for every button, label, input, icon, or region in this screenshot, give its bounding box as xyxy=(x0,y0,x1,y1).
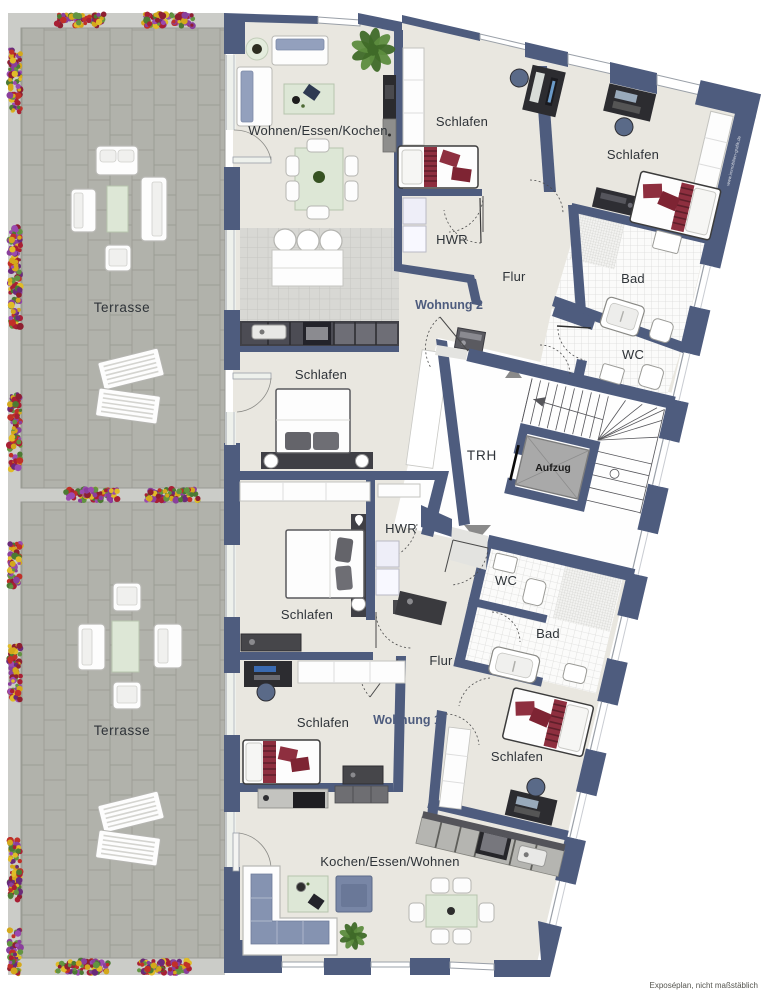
svg-text:Flur: Flur xyxy=(429,653,453,668)
svg-text:Schlafen: Schlafen xyxy=(607,147,659,162)
svg-text:Schlafen: Schlafen xyxy=(491,749,543,764)
svg-text:Flur: Flur xyxy=(502,269,526,284)
svg-text:Schlafen: Schlafen xyxy=(281,607,333,622)
svg-text:Aufzug: Aufzug xyxy=(535,462,571,474)
svg-text:Terrasse: Terrasse xyxy=(94,300,151,315)
svg-text:WC: WC xyxy=(495,573,517,588)
svg-text:HWR: HWR xyxy=(385,521,417,536)
svg-text:Schlafen: Schlafen xyxy=(436,114,488,129)
svg-text:Bad: Bad xyxy=(536,626,560,641)
svg-text:Terrasse: Terrasse xyxy=(94,723,151,738)
svg-text:Wohnung 2: Wohnung 2 xyxy=(415,298,483,312)
svg-text:Kochen/Essen/Wohnen: Kochen/Essen/Wohnen xyxy=(320,854,459,869)
svg-text:Bad: Bad xyxy=(621,271,645,286)
svg-text:Wohnen/Essen/Kochen: Wohnen/Essen/Kochen xyxy=(248,123,387,138)
svg-text:Schlafen: Schlafen xyxy=(297,715,349,730)
svg-text:Wohnung 1: Wohnung 1 xyxy=(373,713,441,727)
svg-text:Exposéplan, nicht maßstäblich: Exposéplan, nicht maßstäblich xyxy=(650,981,759,990)
svg-text:Schlafen: Schlafen xyxy=(295,367,347,382)
svg-text:TRH: TRH xyxy=(467,448,497,463)
svg-text:HWR: HWR xyxy=(436,232,468,247)
svg-text:WC: WC xyxy=(622,347,644,362)
